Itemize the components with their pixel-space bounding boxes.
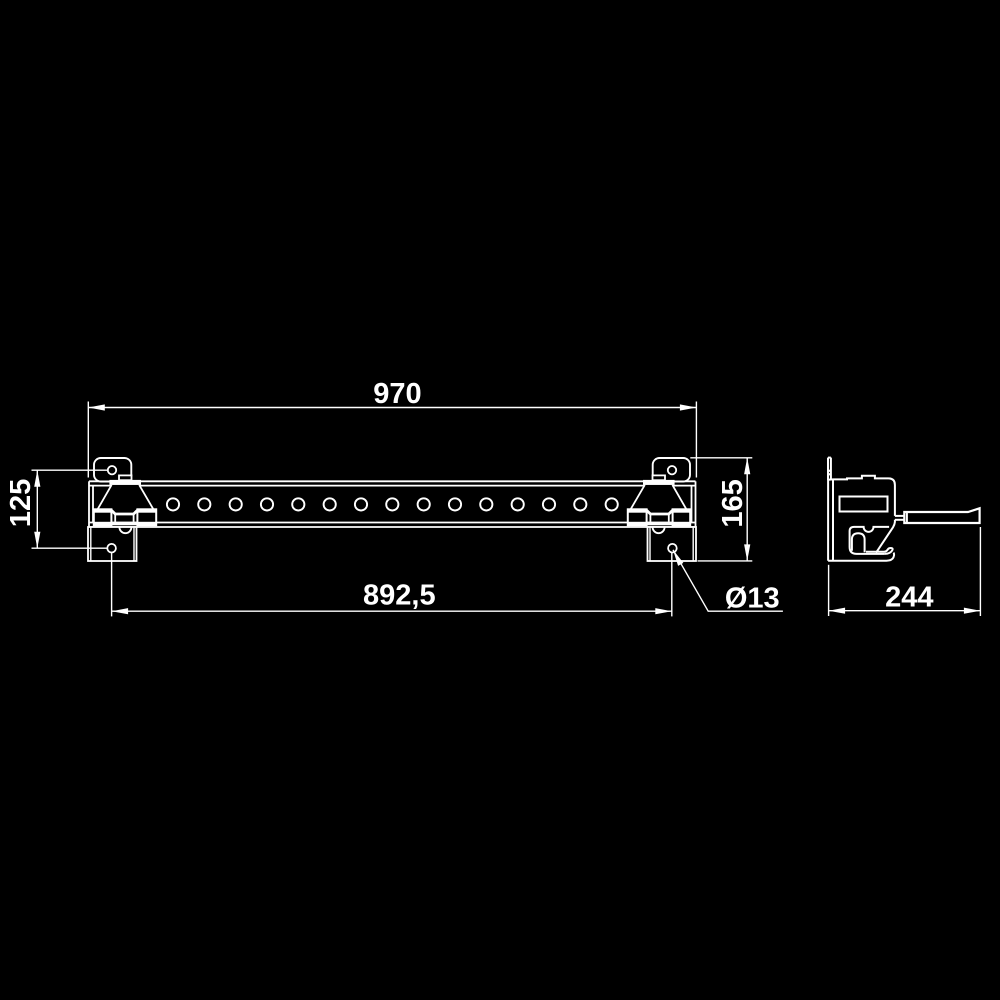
svg-text:244: 244 bbox=[885, 582, 933, 614]
svg-text:892,5: 892,5 bbox=[363, 579, 436, 611]
svg-text:970: 970 bbox=[373, 378, 421, 410]
svg-text:Ø13: Ø13 bbox=[725, 583, 780, 615]
svg-text:165: 165 bbox=[717, 479, 749, 527]
svg-text:125: 125 bbox=[5, 479, 37, 527]
